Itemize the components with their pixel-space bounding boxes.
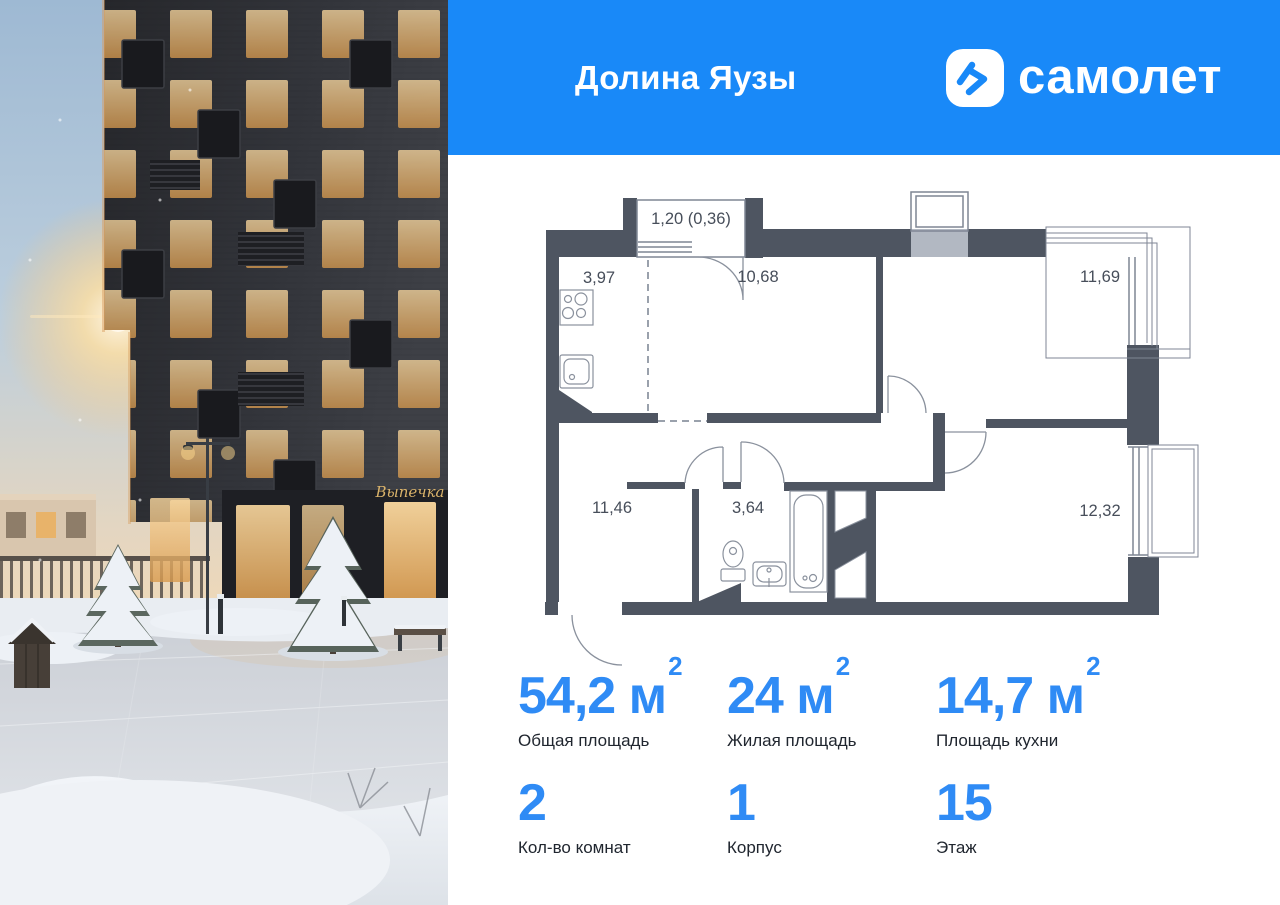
- floor-plan: 1,20 (0,36) 3,97 10,68 11,69 11,46 3,64 …: [535, 180, 1215, 700]
- toilet-icon: [721, 541, 745, 581]
- listing-card-panel: Долина Яузы самолет: [448, 0, 1280, 905]
- walls: [545, 198, 1159, 615]
- stat-building-value: 1: [727, 777, 936, 829]
- stat-living-area: 24 м2 Жилая площадь: [727, 670, 936, 751]
- stat-kitchen-area-value: 14,7 м2: [936, 670, 1100, 722]
- building-photo-illustration: Выпечка: [0, 0, 448, 905]
- zone-dashed-lines: [648, 260, 707, 421]
- balcony-area-label: 1,20 (0,36): [651, 210, 731, 228]
- bathtub-icon: [790, 491, 827, 592]
- stat-total-area: 54,2 м2 Общая площадь: [518, 670, 727, 751]
- stat-kitchen-area-label: Площадь кухни: [936, 731, 1100, 751]
- stat-floor-value: 15: [936, 777, 992, 829]
- stat-total-area-label: Общая площадь: [518, 731, 727, 751]
- stat-rooms-count: 2 Кол-во комнат: [518, 777, 727, 858]
- stat-building-label: Корпус: [727, 838, 936, 858]
- stat-living-area-value: 24 м2: [727, 670, 936, 722]
- project-title: Долина Яузы: [575, 59, 796, 97]
- stat-kitchen-area: 14,7 м2 Площадь кухни: [936, 670, 1100, 751]
- stat-floor: 15 Этаж: [936, 777, 992, 858]
- room-area-bedroom-2: 12,32: [1079, 502, 1120, 520]
- kitchen-sink-icon: [560, 355, 593, 388]
- stat-building: 1 Корпус: [727, 777, 936, 858]
- room-area-living: 10,68: [737, 268, 778, 286]
- stats-row-areas: 54,2 м2 Общая площадь 24 м2 Жилая площад…: [518, 670, 1238, 751]
- room-area-kitchen: 3,97: [583, 269, 615, 287]
- room-area-hall: 11,46: [592, 499, 632, 517]
- stat-living-area-label: Жилая площадь: [727, 731, 936, 751]
- bath-sink-icon: [753, 562, 786, 587]
- header: Долина Яузы самолет: [448, 0, 1280, 155]
- stat-floor-label: Этаж: [936, 838, 992, 858]
- kitchen-stove-icon: [560, 290, 593, 325]
- stats-row-details: 2 Кол-во комнат 1 Корпус 15 Этаж: [518, 777, 1238, 858]
- building-photo: Выпечка: [0, 0, 448, 905]
- apartment-stats: 54,2 м2 Общая площадь 24 м2 Жилая площад…: [518, 670, 1238, 858]
- stat-rooms-count-value: 2: [518, 777, 727, 829]
- bakery-sign: Выпечка: [374, 483, 444, 501]
- room-area-bathroom: 3,64: [732, 499, 764, 517]
- room-area-bedroom: 11,69: [1080, 268, 1120, 286]
- brand-name: самолет: [1018, 53, 1222, 102]
- distant-building: [0, 494, 96, 560]
- stat-total-area-value: 54,2 м2: [518, 670, 727, 722]
- samolet-icon: [946, 49, 1004, 107]
- apartment-tower: Выпечка: [102, 0, 448, 612]
- stat-rooms-count-label: Кол-во комнат: [518, 838, 727, 858]
- brand-logo: самолет: [946, 49, 1222, 107]
